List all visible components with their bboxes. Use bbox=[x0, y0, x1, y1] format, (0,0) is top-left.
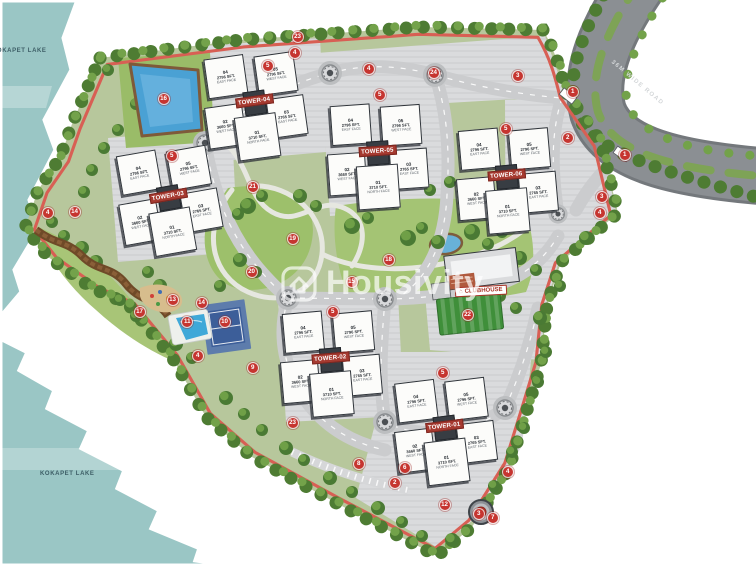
map-marker-14: 14 bbox=[197, 298, 207, 308]
map-marker-24: 24 bbox=[429, 68, 439, 78]
map-marker-4: 4 bbox=[503, 467, 513, 477]
map-marker-10: 10 bbox=[220, 317, 230, 327]
unit-face: NORTH FACE bbox=[367, 189, 390, 195]
lake-label-top: KOKAPET LAKE bbox=[0, 48, 47, 54]
map-marker-23: 23 bbox=[288, 418, 298, 428]
unit-block-01: 013710 SFT.NORTH FACE bbox=[424, 437, 471, 486]
map-marker-15: 15 bbox=[347, 277, 357, 287]
map-marker-1: 1 bbox=[620, 150, 630, 160]
unit-block-04: 042796 SFT.EAST FACE bbox=[458, 128, 501, 171]
tower-tower-02: 042796 SFT.EAST FACE052796 SFT.WEST FACE… bbox=[275, 302, 384, 420]
map-marker-4: 4 bbox=[193, 351, 203, 361]
map-marker-12: 12 bbox=[440, 500, 450, 510]
unit-block-04: 042796 SFT.EAST FACE bbox=[330, 103, 373, 146]
unit-face: WEST FACE bbox=[520, 151, 540, 157]
clubhouse-label-text: CLUBHOUSE bbox=[464, 287, 502, 295]
site-master-plan: KOKAPET LAKE KOKAPET LAKE 36M WIDE ROAD … bbox=[0, 0, 756, 566]
map-marker-17: 17 bbox=[135, 307, 145, 317]
house-icon: ⌂ bbox=[459, 289, 463, 295]
map-marker-20: 20 bbox=[247, 267, 257, 277]
map-marker-5: 5 bbox=[167, 151, 177, 161]
map-marker-21: 21 bbox=[248, 182, 258, 192]
map-marker-9: 9 bbox=[248, 363, 258, 373]
map-marker-14: 14 bbox=[70, 207, 80, 217]
unit-face: EAST FACE bbox=[353, 377, 372, 383]
roundabout bbox=[318, 61, 342, 85]
unit-face: WEST FACE bbox=[391, 128, 411, 134]
unit-face: WEST FACE bbox=[337, 176, 357, 182]
unit-block-01: 013710 SFT.NORTH FACE bbox=[356, 164, 401, 211]
map-marker-5: 5 bbox=[438, 368, 448, 378]
unit-face: WEST FACE bbox=[467, 201, 487, 207]
map-marker-16: 16 bbox=[159, 94, 169, 104]
swimming-pool bbox=[168, 309, 213, 345]
unit-face: WEST FACE bbox=[291, 384, 311, 390]
roundabout bbox=[276, 286, 300, 310]
roundabout bbox=[493, 396, 517, 420]
unit-face: EAST FACE bbox=[294, 334, 313, 340]
unit-face: EAST FACE bbox=[529, 194, 548, 200]
tower-tower-06: 042796 SFT.EAST FACE052796 SFT.WEST FACE… bbox=[451, 119, 560, 237]
map-marker-23: 23 bbox=[293, 32, 303, 42]
map-marker-1: 1 bbox=[568, 87, 578, 97]
unit-face: NORTH FACE bbox=[497, 213, 520, 219]
map-marker-3: 3 bbox=[513, 71, 523, 81]
map-marker-2: 2 bbox=[390, 478, 400, 488]
unit-block-01: 013710 SFT.NORTH FACE bbox=[309, 370, 355, 417]
map-marker-13: 13 bbox=[168, 295, 178, 305]
map-marker-5: 5 bbox=[375, 90, 385, 100]
map-marker-4: 4 bbox=[290, 48, 300, 58]
unit-block-04: 042796 SFT.EAST FACE bbox=[282, 311, 325, 354]
map-marker-4: 4 bbox=[364, 64, 374, 74]
map-marker-5: 5 bbox=[501, 124, 511, 134]
unit-face: WEST FACE bbox=[457, 401, 478, 408]
lake-label-bottom: KOKAPET LAKE bbox=[40, 471, 95, 477]
tower-tower-05: 042796 SFT.EAST FACE052796 SFT.WEST FACE… bbox=[323, 96, 430, 213]
roundabout bbox=[373, 287, 397, 311]
map-marker-19: 19 bbox=[288, 234, 298, 244]
map-marker-2: 2 bbox=[563, 133, 573, 143]
map-marker-11: 11 bbox=[182, 317, 192, 327]
unit-face: EAST FACE bbox=[400, 171, 419, 177]
map-marker-3: 3 bbox=[597, 192, 607, 202]
unit-face: EAST FACE bbox=[407, 403, 427, 410]
map-marker-4: 4 bbox=[595, 208, 605, 218]
map-marker-8: 8 bbox=[354, 459, 364, 469]
unit-face: EAST FACE bbox=[470, 151, 489, 157]
map-marker-18: 18 bbox=[384, 255, 394, 265]
unit-block-01: 013710 SFT.NORTH FACE bbox=[234, 112, 282, 161]
unit-face: EAST FACE bbox=[468, 444, 488, 451]
unit-face: NORTH FACE bbox=[321, 396, 344, 402]
map-marker-4: 4 bbox=[43, 208, 53, 218]
unit-block-01: 013710 SFT.NORTH FACE bbox=[148, 206, 197, 257]
unit-face: EAST FACE bbox=[342, 127, 361, 133]
tower-tower-04: 042796 SFT.EAST FACE052796 SFT.WEST FACE… bbox=[197, 43, 311, 166]
map-marker-22: 22 bbox=[463, 310, 473, 320]
unit-block-01: 013710 SFT.NORTH FACE bbox=[485, 187, 531, 234]
map-marker-5: 5 bbox=[263, 61, 273, 71]
unit-face: WEST FACE bbox=[344, 334, 364, 340]
map-marker-5: 5 bbox=[328, 307, 338, 317]
unit-face: WEST FACE bbox=[406, 452, 427, 459]
map-marker-7: 7 bbox=[488, 513, 498, 523]
map-marker-3: 3 bbox=[474, 509, 484, 519]
map-marker-6: 6 bbox=[400, 463, 410, 473]
